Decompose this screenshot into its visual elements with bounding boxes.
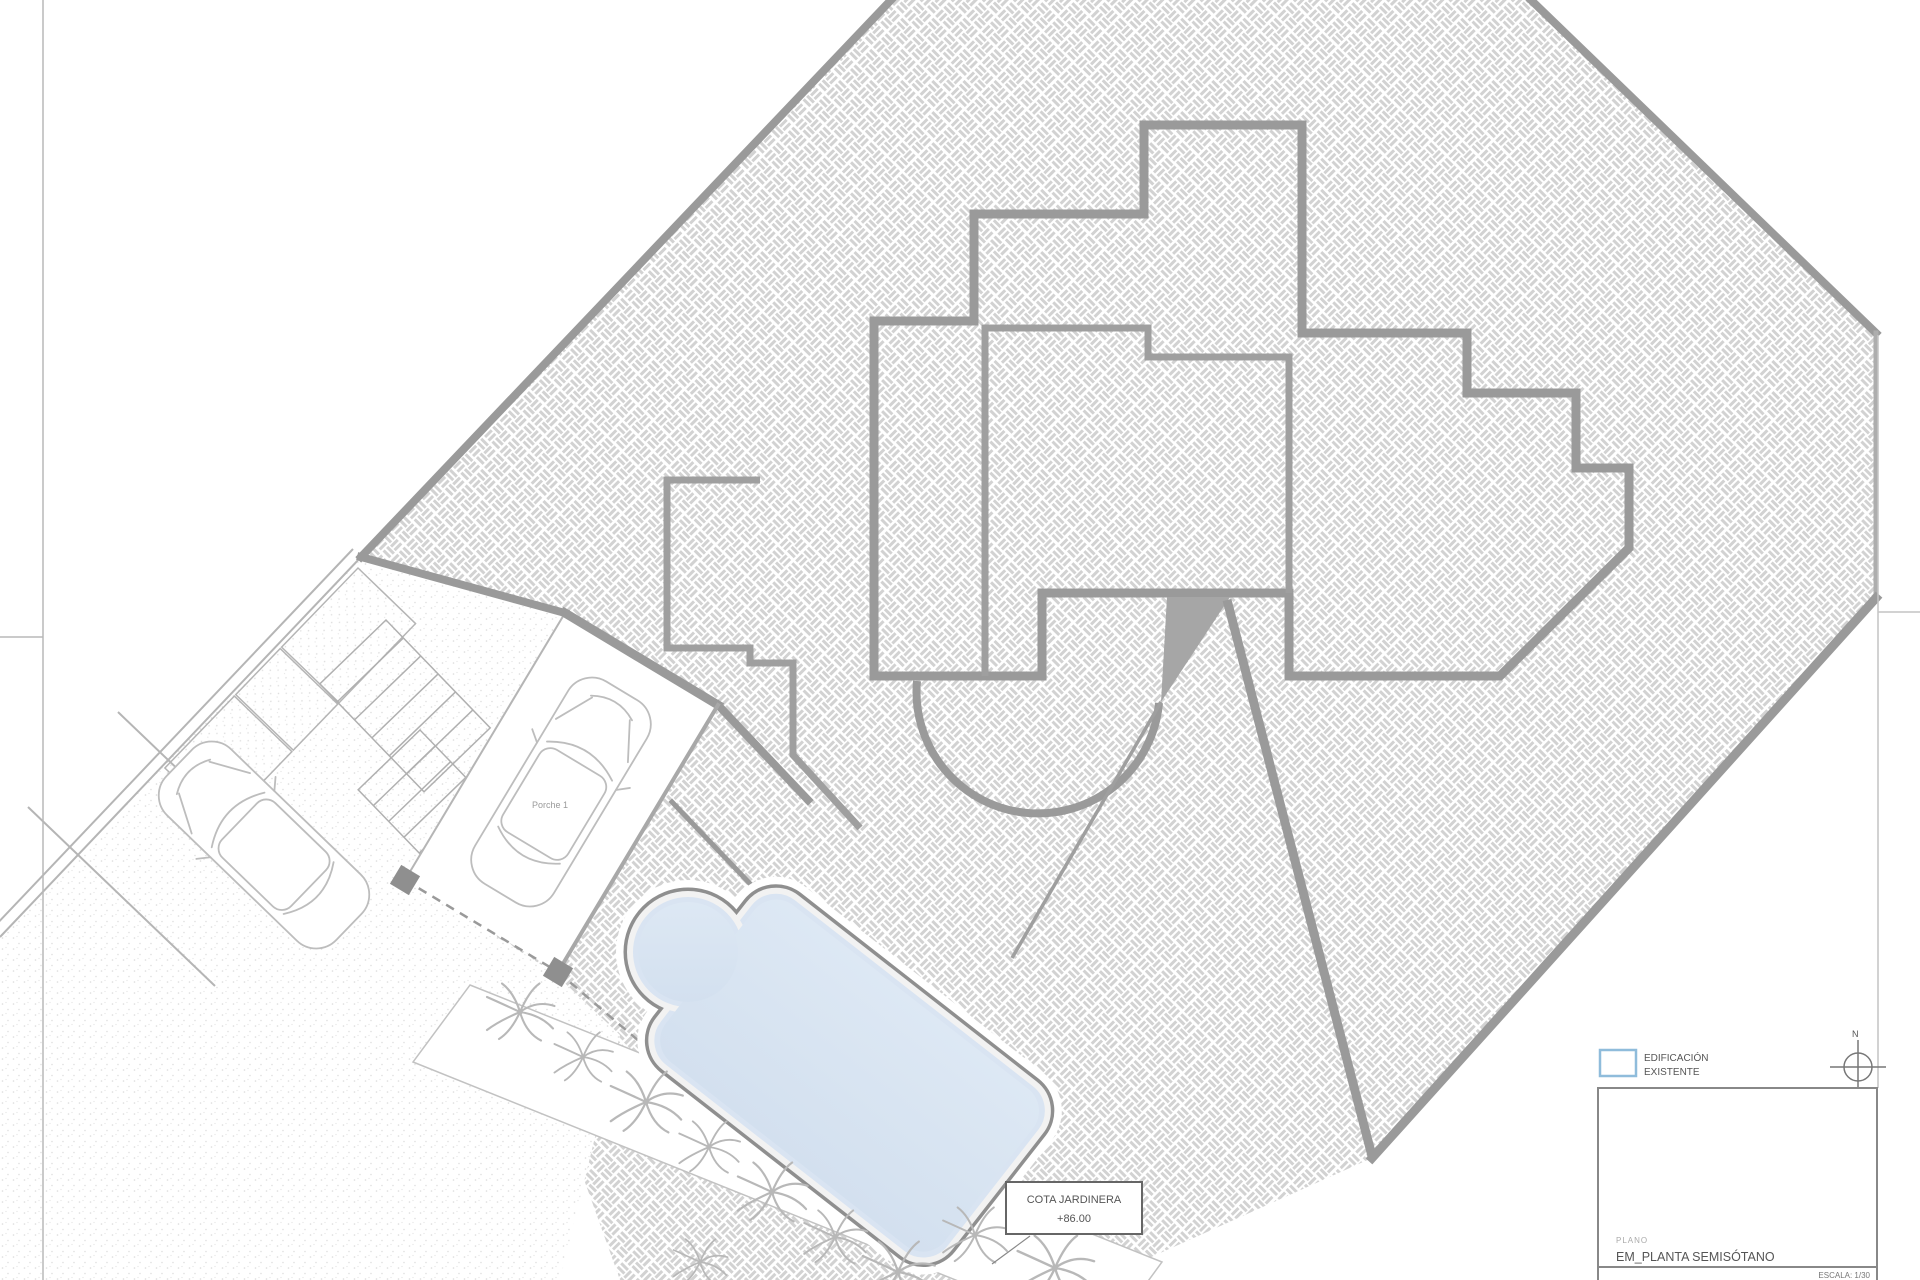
title-block: PLANO EM_PLANTA SEMISÓTANO ESCALA: 1/30 xyxy=(1598,1088,1877,1280)
scale-label: ESCALA: 1/30 xyxy=(1818,1271,1870,1280)
north-label: N xyxy=(1852,1029,1859,1039)
porche-label: Porche 1 xyxy=(532,800,568,810)
cota-line2: +86.00 xyxy=(1057,1213,1091,1225)
site-plan-page: Porche 1 xyxy=(0,0,1920,1280)
legend-swatch xyxy=(1600,1050,1636,1076)
legend-label-line1: EDIFICACIÓN xyxy=(1644,1051,1708,1064)
drawing-title: EM_PLANTA SEMISÓTANO xyxy=(1616,1249,1775,1264)
cota-line1: COTA JARDINERA xyxy=(1027,1194,1122,1206)
plano-label: PLANO xyxy=(1616,1236,1648,1245)
legend: EDIFICACIÓN EXISTENTE xyxy=(1600,1050,1708,1078)
site-plan-drawing: Porche 1 xyxy=(0,0,1920,1280)
legend-label-line2: EXISTENTE xyxy=(1644,1067,1700,1078)
